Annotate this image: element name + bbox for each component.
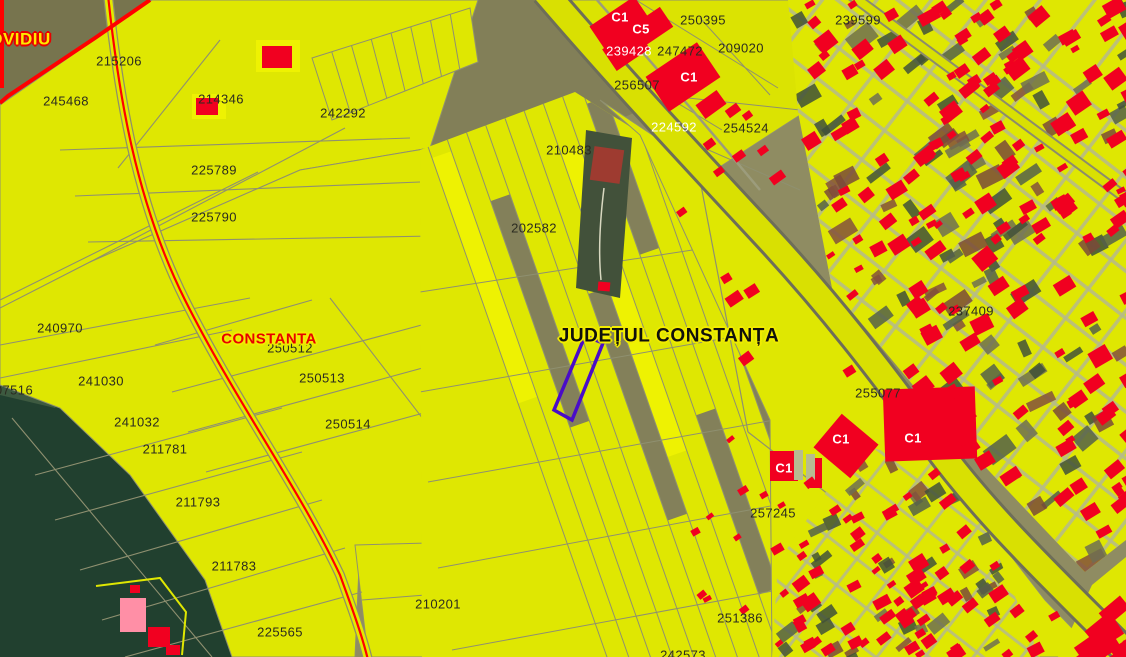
building <box>598 281 611 291</box>
map-canvas[interactable] <box>0 0 1126 657</box>
building <box>196 98 218 115</box>
building <box>883 386 977 461</box>
farm-building <box>166 645 180 655</box>
building <box>262 46 292 68</box>
mansion-roof <box>590 146 624 184</box>
farm-building <box>148 627 170 647</box>
map-viewport[interactable]: 2152062454682143462422922257892257902409… <box>0 0 1126 657</box>
farm-building <box>120 598 146 632</box>
farm-building <box>130 585 140 593</box>
